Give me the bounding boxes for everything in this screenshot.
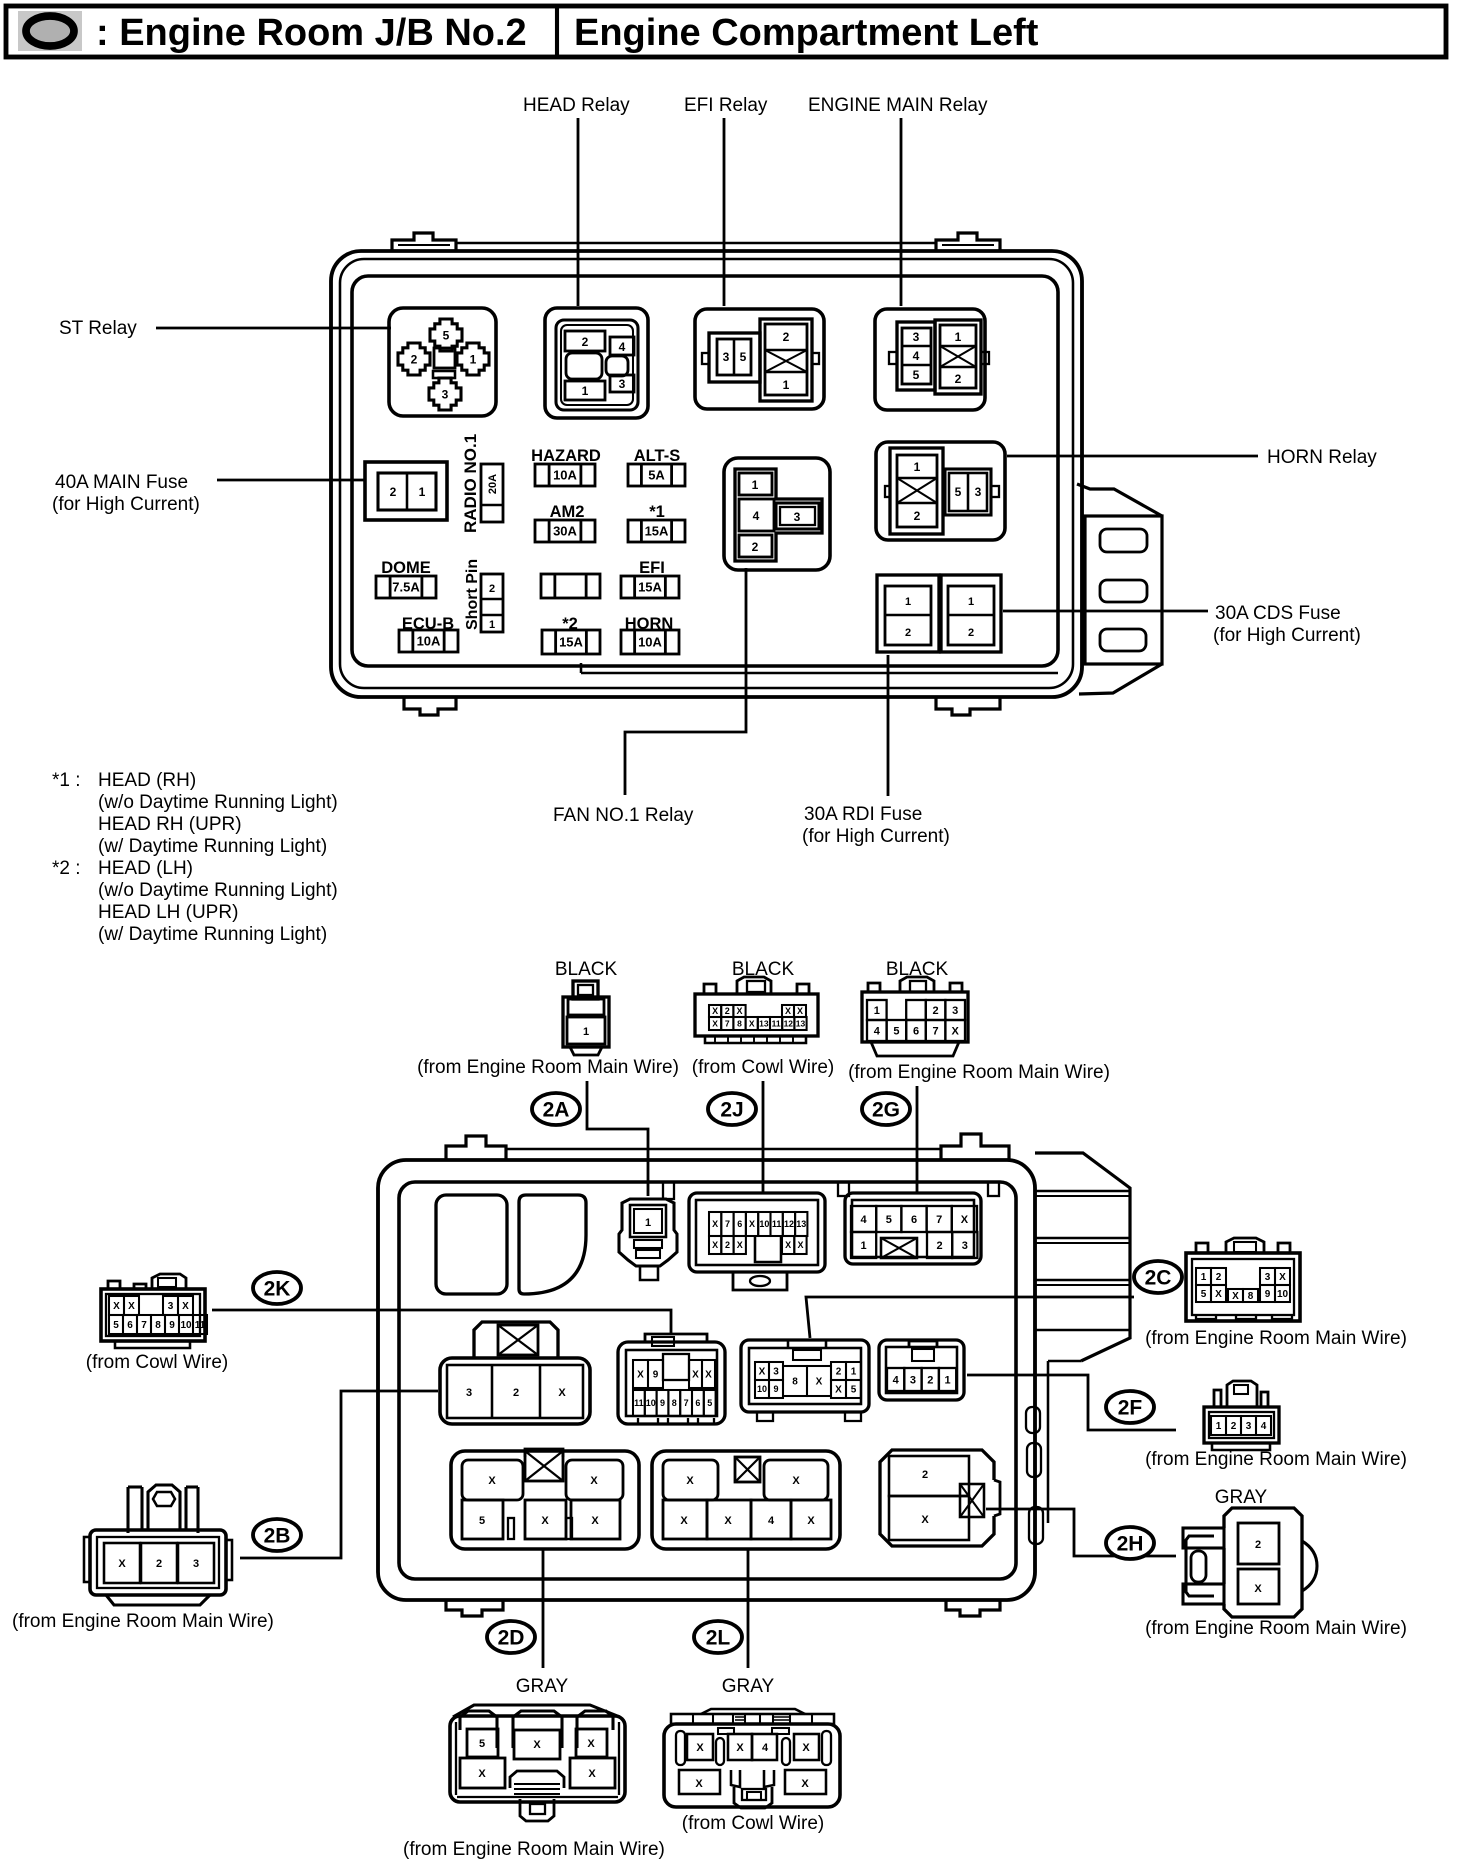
svg-text:30A CDS Fuse: 30A CDS Fuse bbox=[1215, 603, 1341, 624]
svg-text:2D: 2D bbox=[498, 1627, 525, 1650]
svg-text:X: X bbox=[1232, 1291, 1239, 1302]
svg-text:X: X bbox=[692, 1370, 699, 1381]
svg-text:X: X bbox=[118, 1558, 126, 1570]
svg-text:GRAY: GRAY bbox=[1215, 1487, 1268, 1508]
svg-text:2: 2 bbox=[914, 509, 921, 523]
svg-text:2: 2 bbox=[390, 485, 397, 499]
svg-text:1: 1 bbox=[874, 1005, 880, 1017]
svg-text:1: 1 bbox=[861, 1240, 867, 1252]
svg-text:3: 3 bbox=[1246, 1421, 1252, 1432]
svg-text:X: X bbox=[182, 1301, 189, 1312]
svg-text:5: 5 bbox=[479, 1738, 485, 1750]
svg-text:*1: *1 bbox=[649, 503, 665, 521]
svg-text:5: 5 bbox=[707, 1398, 712, 1408]
svg-text:X: X bbox=[705, 1370, 712, 1381]
svg-text:1: 1 bbox=[470, 353, 477, 367]
svg-text:40A MAIN Fuse: 40A MAIN Fuse bbox=[55, 472, 188, 493]
svg-text:FAN NO.1 Relay: FAN NO.1 Relay bbox=[553, 805, 694, 826]
svg-text:15A: 15A bbox=[638, 580, 662, 595]
svg-text:(w/ Daytime Running Light): (w/ Daytime Running Light) bbox=[98, 924, 327, 945]
svg-text:2: 2 bbox=[783, 330, 790, 344]
svg-text:4: 4 bbox=[619, 340, 626, 354]
svg-text:11: 11 bbox=[195, 1320, 206, 1331]
svg-text:5: 5 bbox=[851, 1385, 857, 1396]
svg-text:X: X bbox=[961, 1214, 969, 1226]
svg-text:15A: 15A bbox=[645, 524, 669, 539]
svg-text:5: 5 bbox=[479, 1515, 485, 1527]
svg-text:X: X bbox=[488, 1475, 496, 1487]
svg-text:X: X bbox=[696, 1742, 704, 1754]
svg-text:ALT-S: ALT-S bbox=[634, 447, 680, 465]
svg-text:3: 3 bbox=[975, 485, 982, 499]
svg-text:2K: 2K bbox=[264, 1278, 291, 1301]
svg-text:(for High Current): (for High Current) bbox=[52, 494, 200, 515]
svg-text:X: X bbox=[588, 1768, 596, 1780]
svg-text:2J: 2J bbox=[720, 1099, 743, 1122]
svg-text:15A: 15A bbox=[559, 635, 583, 650]
svg-text:HEAD Relay: HEAD Relay bbox=[523, 95, 630, 116]
svg-text:7: 7 bbox=[684, 1398, 689, 1408]
svg-text:9: 9 bbox=[773, 1384, 778, 1394]
svg-text:5: 5 bbox=[113, 1320, 119, 1331]
svg-text:2: 2 bbox=[725, 1240, 730, 1250]
svg-text:HEAD RH (UPR): HEAD RH (UPR) bbox=[98, 814, 242, 835]
svg-text:BLACK: BLACK bbox=[555, 959, 618, 980]
svg-text:4: 4 bbox=[768, 1515, 775, 1527]
svg-text:1: 1 bbox=[851, 1367, 857, 1378]
svg-text:(from Engine Room Main Wire): (from Engine Room Main Wire) bbox=[1145, 1618, 1407, 1639]
svg-text:9: 9 bbox=[1265, 1289, 1271, 1300]
svg-text:10A: 10A bbox=[638, 635, 662, 650]
svg-text:Short Pin: Short Pin bbox=[464, 559, 481, 630]
svg-text:6: 6 bbox=[127, 1320, 133, 1331]
svg-text:12: 12 bbox=[784, 1019, 794, 1029]
svg-text:(from Engine Room Main Wire): (from Engine Room Main Wire) bbox=[12, 1611, 274, 1632]
svg-text:X: X bbox=[724, 1515, 732, 1527]
svg-text:3: 3 bbox=[168, 1301, 174, 1312]
svg-text:(from Engine Room Main Wire): (from Engine Room Main Wire) bbox=[1145, 1328, 1407, 1349]
svg-text:3: 3 bbox=[913, 330, 920, 344]
svg-text:(from Engine Room Main Wire): (from Engine Room Main Wire) bbox=[848, 1062, 1110, 1083]
svg-text:5: 5 bbox=[913, 368, 920, 382]
svg-text:3: 3 bbox=[910, 1374, 916, 1386]
svg-text:1: 1 bbox=[582, 384, 589, 398]
svg-text:2: 2 bbox=[582, 335, 589, 349]
svg-text:X: X bbox=[712, 1219, 718, 1229]
svg-text:X: X bbox=[785, 1240, 791, 1250]
svg-text:1: 1 bbox=[1201, 1272, 1207, 1283]
svg-text:5A: 5A bbox=[648, 468, 665, 483]
svg-text:X: X bbox=[533, 1739, 541, 1751]
svg-text:(w/o Daytime Running Light): (w/o Daytime Running Light) bbox=[98, 792, 338, 813]
svg-text:3: 3 bbox=[442, 388, 449, 402]
svg-text:(w/o Daytime Running Light): (w/o Daytime Running Light) bbox=[98, 880, 338, 901]
svg-text:X: X bbox=[749, 1219, 755, 1229]
svg-text:3: 3 bbox=[619, 377, 626, 391]
svg-text:11: 11 bbox=[634, 1398, 644, 1408]
svg-text:HEAD LH (UPR): HEAD LH (UPR) bbox=[98, 902, 238, 923]
svg-text:3: 3 bbox=[466, 1387, 472, 1399]
svg-text:2G: 2G bbox=[872, 1099, 900, 1122]
svg-text:6: 6 bbox=[913, 1025, 919, 1037]
svg-text:X: X bbox=[749, 1019, 755, 1029]
svg-text:5: 5 bbox=[740, 350, 747, 364]
svg-text:3: 3 bbox=[773, 1367, 779, 1378]
svg-text:5: 5 bbox=[886, 1214, 892, 1226]
svg-text:DOME: DOME bbox=[381, 559, 431, 577]
svg-text:2: 2 bbox=[411, 353, 418, 367]
svg-text:2: 2 bbox=[156, 1558, 162, 1570]
svg-text:2: 2 bbox=[752, 540, 759, 554]
svg-text:HAZARD: HAZARD bbox=[531, 447, 601, 465]
svg-text:X: X bbox=[921, 1514, 929, 1526]
svg-text:13: 13 bbox=[759, 1019, 769, 1029]
svg-text:30A RDI Fuse: 30A RDI Fuse bbox=[804, 804, 922, 825]
svg-text:1: 1 bbox=[489, 619, 495, 631]
svg-text:X: X bbox=[1254, 1583, 1262, 1595]
svg-text:10: 10 bbox=[757, 1384, 767, 1394]
svg-text:X: X bbox=[695, 1778, 703, 1790]
svg-text:EFI: EFI bbox=[639, 559, 665, 577]
svg-text:X: X bbox=[1215, 1289, 1222, 1300]
svg-text:*1 :: *1 : bbox=[52, 770, 81, 791]
svg-text:1: 1 bbox=[419, 485, 426, 499]
svg-text:2L: 2L bbox=[706, 1627, 731, 1650]
svg-text:X: X bbox=[736, 1742, 744, 1754]
svg-text:11: 11 bbox=[772, 1219, 782, 1229]
svg-text:(for High Current): (for High Current) bbox=[1213, 625, 1361, 646]
svg-text:4: 4 bbox=[861, 1214, 868, 1226]
svg-text:6: 6 bbox=[695, 1398, 700, 1408]
svg-text:20A: 20A bbox=[487, 474, 499, 494]
svg-text:10A: 10A bbox=[417, 634, 441, 649]
svg-text:2: 2 bbox=[1231, 1421, 1237, 1432]
svg-text:30A: 30A bbox=[553, 524, 577, 539]
svg-text:X: X bbox=[541, 1515, 549, 1527]
svg-text:7: 7 bbox=[725, 1019, 730, 1029]
svg-text:3: 3 bbox=[962, 1240, 968, 1252]
svg-text:2F: 2F bbox=[1118, 1397, 1143, 1420]
svg-text:3: 3 bbox=[193, 1558, 199, 1570]
svg-text:3: 3 bbox=[952, 1005, 958, 1017]
svg-text:X: X bbox=[478, 1768, 486, 1780]
svg-text:(w/ Daytime Running Light): (w/ Daytime Running Light) bbox=[98, 836, 327, 857]
svg-text:X: X bbox=[759, 1367, 766, 1378]
svg-text:(from Cowl Wire): (from Cowl Wire) bbox=[682, 1813, 825, 1834]
svg-text:Engine Compartment Left: Engine Compartment Left bbox=[574, 12, 1039, 54]
svg-text:X: X bbox=[587, 1738, 595, 1750]
svg-text:RADIO NO.1: RADIO NO.1 bbox=[461, 434, 480, 533]
svg-text:X: X bbox=[835, 1385, 842, 1396]
svg-text:1: 1 bbox=[1216, 1421, 1222, 1432]
svg-text:2B: 2B bbox=[264, 1525, 291, 1548]
svg-text:1: 1 bbox=[944, 1374, 950, 1386]
svg-text:(from Cowl Wire): (from Cowl Wire) bbox=[86, 1352, 229, 1373]
svg-text:8: 8 bbox=[672, 1398, 677, 1408]
svg-text:2: 2 bbox=[1255, 1539, 1261, 1551]
svg-text:X: X bbox=[591, 1515, 599, 1527]
svg-text:9: 9 bbox=[653, 1370, 659, 1381]
svg-text:X: X bbox=[797, 1240, 803, 1250]
svg-text:X: X bbox=[712, 1019, 718, 1029]
svg-text:X: X bbox=[712, 1240, 718, 1250]
svg-text:HORN Relay: HORN Relay bbox=[1267, 447, 1377, 468]
svg-text:X: X bbox=[590, 1475, 598, 1487]
svg-text:3: 3 bbox=[723, 350, 730, 364]
svg-text:8: 8 bbox=[155, 1320, 161, 1331]
svg-text:7.5A: 7.5A bbox=[392, 580, 420, 595]
svg-text:ST Relay: ST Relay bbox=[59, 318, 137, 339]
svg-text:9: 9 bbox=[660, 1398, 665, 1408]
svg-text:X: X bbox=[816, 1377, 823, 1388]
svg-text:12: 12 bbox=[784, 1219, 794, 1229]
svg-text:EFI Relay: EFI Relay bbox=[684, 95, 768, 116]
svg-text:X: X bbox=[736, 1006, 742, 1016]
svg-text:2C: 2C bbox=[1145, 1267, 1172, 1290]
svg-text:GRAY: GRAY bbox=[516, 1676, 569, 1697]
svg-text:10: 10 bbox=[180, 1320, 192, 1331]
svg-text:2A: 2A bbox=[543, 1099, 570, 1122]
svg-text:6: 6 bbox=[911, 1214, 917, 1226]
svg-text:10: 10 bbox=[759, 1219, 769, 1229]
svg-text:(from Cowl Wire): (from Cowl Wire) bbox=[692, 1057, 835, 1078]
svg-text:HEAD (RH): HEAD (RH) bbox=[98, 770, 196, 791]
svg-text:1: 1 bbox=[905, 596, 911, 608]
svg-text:*2 :: *2 : bbox=[52, 858, 81, 879]
svg-text:2: 2 bbox=[937, 1240, 943, 1252]
svg-text:10A: 10A bbox=[553, 468, 577, 483]
svg-text:X: X bbox=[792, 1475, 800, 1487]
svg-text:X: X bbox=[802, 1742, 810, 1754]
svg-text:1: 1 bbox=[968, 596, 974, 608]
svg-text:2: 2 bbox=[513, 1387, 519, 1399]
svg-text:5: 5 bbox=[1201, 1289, 1207, 1300]
svg-text:2: 2 bbox=[489, 583, 495, 595]
svg-text:13: 13 bbox=[796, 1219, 806, 1229]
svg-text:X: X bbox=[686, 1475, 694, 1487]
svg-text:1: 1 bbox=[783, 378, 790, 392]
svg-text:X: X bbox=[797, 1006, 803, 1016]
svg-text:(from Engine Room Main Wire): (from Engine Room Main Wire) bbox=[403, 1839, 665, 1860]
svg-text:HEAD (LH): HEAD (LH) bbox=[98, 858, 193, 879]
svg-text:4: 4 bbox=[874, 1025, 881, 1037]
svg-text:1: 1 bbox=[645, 1217, 651, 1229]
svg-text:2H: 2H bbox=[1117, 1533, 1144, 1556]
svg-text:X: X bbox=[113, 1301, 120, 1312]
svg-text:10: 10 bbox=[646, 1398, 656, 1408]
svg-text:3: 3 bbox=[1265, 1272, 1271, 1283]
svg-text:9: 9 bbox=[169, 1320, 175, 1331]
svg-text:7: 7 bbox=[933, 1025, 939, 1037]
svg-text:8: 8 bbox=[792, 1377, 798, 1388]
svg-text:4: 4 bbox=[913, 349, 920, 363]
svg-text:X: X bbox=[680, 1515, 688, 1527]
svg-text:X: X bbox=[1279, 1272, 1286, 1283]
svg-text:2: 2 bbox=[836, 1367, 842, 1378]
svg-text:2: 2 bbox=[905, 627, 911, 639]
svg-text:1: 1 bbox=[752, 478, 759, 492]
svg-text:2: 2 bbox=[922, 1469, 928, 1481]
svg-text:4: 4 bbox=[762, 1742, 769, 1754]
svg-text:(from Engine Room Main Wire): (from Engine Room Main Wire) bbox=[417, 1057, 679, 1078]
svg-text:3: 3 bbox=[794, 510, 801, 524]
svg-text:10: 10 bbox=[1277, 1289, 1289, 1300]
svg-text:2: 2 bbox=[1216, 1272, 1222, 1283]
svg-text:4: 4 bbox=[1261, 1421, 1267, 1432]
svg-text:X: X bbox=[712, 1006, 718, 1016]
svg-text:7: 7 bbox=[141, 1320, 147, 1331]
svg-text:8: 8 bbox=[737, 1019, 742, 1029]
svg-text:1: 1 bbox=[955, 330, 962, 344]
svg-text:4: 4 bbox=[753, 509, 760, 523]
svg-text:2: 2 bbox=[933, 1005, 939, 1017]
svg-text:11: 11 bbox=[772, 1019, 781, 1029]
svg-text:X: X bbox=[801, 1778, 809, 1790]
svg-text:: Engine Room J/B No.2: : Engine Room J/B No.2 bbox=[96, 12, 527, 54]
svg-text:2: 2 bbox=[955, 372, 962, 386]
svg-text:X: X bbox=[128, 1301, 135, 1312]
svg-text:X: X bbox=[952, 1025, 960, 1037]
svg-text:1: 1 bbox=[583, 1026, 589, 1038]
svg-text:GRAY: GRAY bbox=[722, 1676, 775, 1697]
svg-text:X: X bbox=[807, 1515, 815, 1527]
svg-text:1: 1 bbox=[914, 460, 921, 474]
svg-text:13: 13 bbox=[796, 1019, 806, 1029]
svg-text:(for High Current): (for High Current) bbox=[802, 826, 950, 847]
svg-text:(from Engine Room Main Wire): (from Engine Room Main Wire) bbox=[1145, 1449, 1407, 1470]
svg-text:X: X bbox=[785, 1006, 791, 1016]
svg-text:8: 8 bbox=[1248, 1291, 1254, 1302]
svg-text:4: 4 bbox=[893, 1374, 900, 1386]
svg-text:X: X bbox=[558, 1387, 566, 1399]
svg-text:X: X bbox=[737, 1240, 743, 1250]
svg-text:5: 5 bbox=[893, 1025, 899, 1037]
svg-text:7: 7 bbox=[936, 1214, 942, 1226]
svg-text:5: 5 bbox=[955, 485, 962, 499]
svg-text:AM2: AM2 bbox=[550, 503, 585, 521]
svg-text:5: 5 bbox=[443, 329, 450, 343]
svg-text:X: X bbox=[637, 1370, 644, 1381]
svg-text:2: 2 bbox=[725, 1006, 730, 1016]
svg-text:6: 6 bbox=[737, 1219, 742, 1229]
svg-text:2: 2 bbox=[968, 627, 974, 639]
svg-text:7: 7 bbox=[725, 1219, 730, 1229]
svg-text:ENGINE MAIN Relay: ENGINE MAIN Relay bbox=[808, 95, 988, 116]
svg-text:2: 2 bbox=[927, 1374, 933, 1386]
